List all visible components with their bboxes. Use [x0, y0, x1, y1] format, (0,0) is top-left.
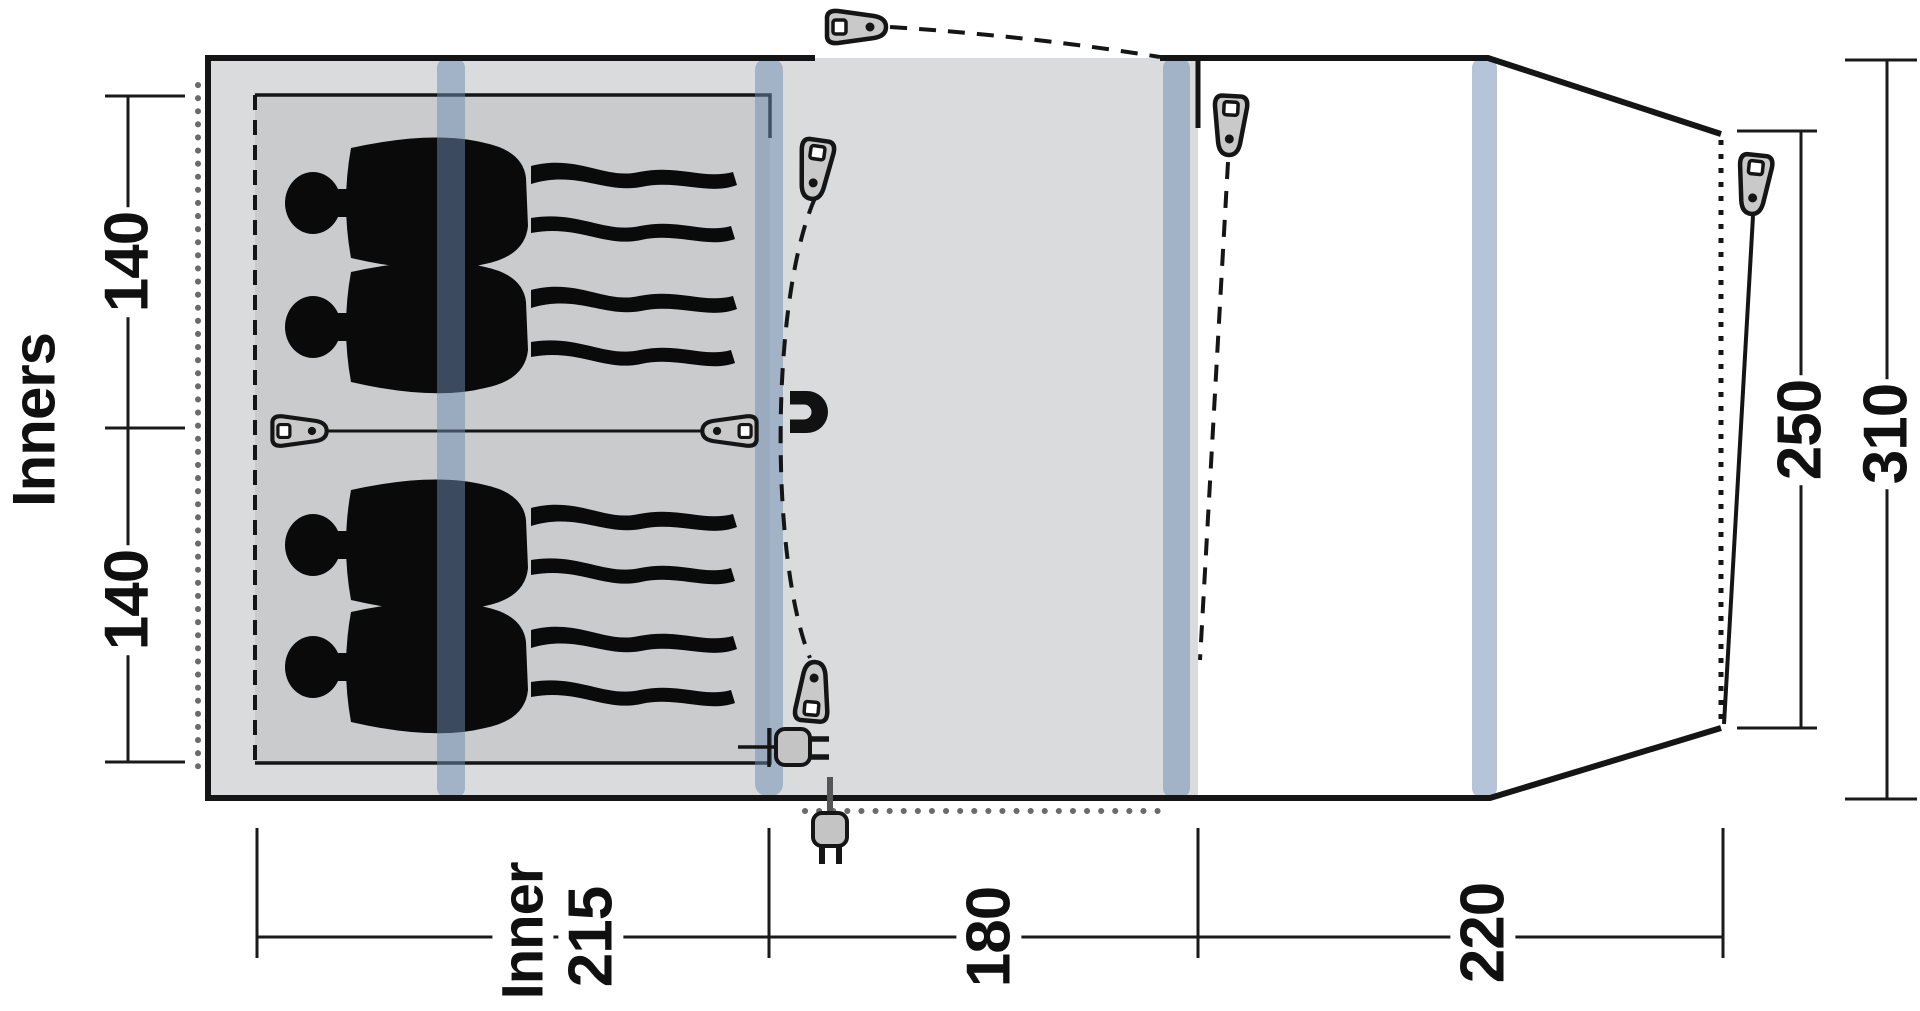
floorplan-canvas [0, 0, 1920, 1011]
dim-label-140-top: 140 [94, 207, 159, 317]
zipper-toggle-icon [827, 11, 886, 43]
tent-pole-stripe [437, 58, 465, 798]
front-panel-zipper-line [1724, 216, 1753, 724]
dim-label-140-bottom: 140 [94, 545, 159, 655]
zipper-toggle-icon [1735, 153, 1773, 215]
front-door-zipper-dashed-line [890, 27, 1160, 57]
tent-floorplan-diagram: Inners 140 140 Inner 215 180 220 250 310 [0, 0, 1920, 1011]
tent-pole-stripe [1163, 58, 1190, 798]
dimension-line-inner-widths [105, 96, 185, 762]
dim-label-180: 180 [956, 882, 1021, 992]
label-inners: Inners [2, 328, 65, 512]
power-plug-icon [813, 813, 847, 864]
dim-label-inner-word: Inner [492, 858, 553, 1005]
zipper-toggle-icon [702, 416, 756, 446]
dim-label-310: 310 [1853, 379, 1918, 489]
tent-pole-stripe [1472, 58, 1497, 798]
dim-label-250: 250 [1767, 375, 1832, 485]
zipper-toggle-icon [272, 416, 326, 446]
dim-label-220: 220 [1450, 878, 1515, 988]
dim-label-215: 215 [558, 882, 623, 992]
